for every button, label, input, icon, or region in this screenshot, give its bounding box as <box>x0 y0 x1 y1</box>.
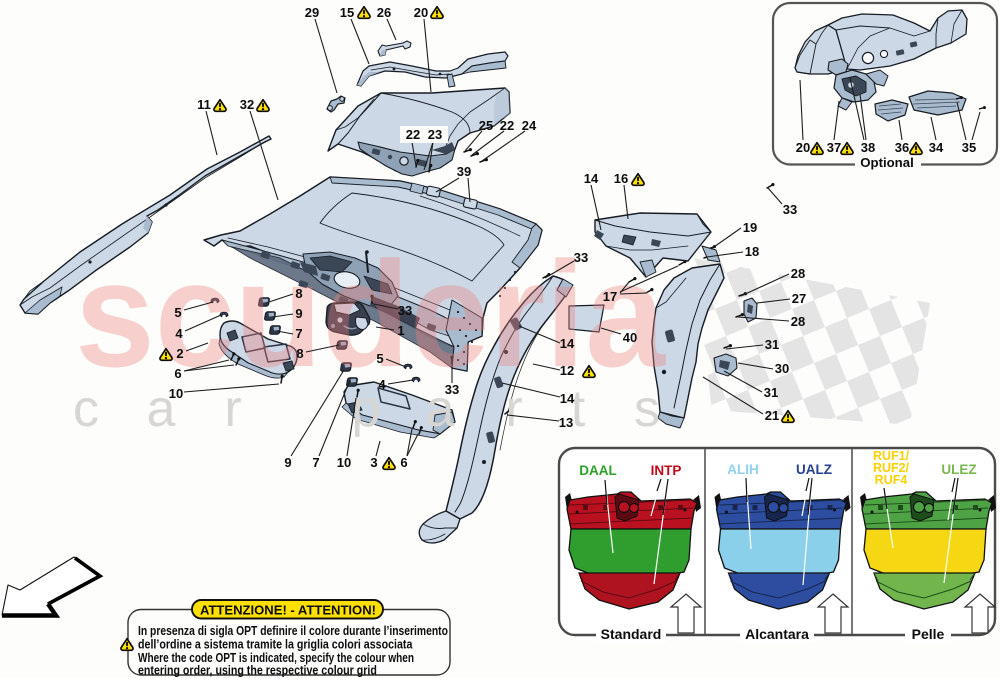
svg-text:8: 8 <box>296 346 303 361</box>
svg-text:8: 8 <box>295 286 302 301</box>
svg-text:26: 26 <box>377 5 391 20</box>
svg-text:35: 35 <box>962 140 976 155</box>
svg-text:33: 33 <box>445 382 459 397</box>
svg-text:38: 38 <box>861 140 875 155</box>
svg-text:33: 33 <box>574 250 588 265</box>
svg-text:14: 14 <box>560 391 575 406</box>
svg-text:12: 12 <box>560 363 574 378</box>
svg-text:ALIH: ALIH <box>727 462 759 477</box>
svg-text:28: 28 <box>791 266 805 281</box>
svg-text:15: 15 <box>340 5 354 20</box>
svg-text:37: 37 <box>827 140 841 155</box>
svg-text:10: 10 <box>169 386 183 401</box>
svg-text:27: 27 <box>792 291 806 306</box>
svg-text:28: 28 <box>791 314 805 329</box>
svg-text:14: 14 <box>584 171 599 186</box>
svg-text:4: 4 <box>175 326 183 341</box>
svg-text:11: 11 <box>197 97 211 112</box>
svg-text:19: 19 <box>743 220 757 235</box>
svg-text:Standard: Standard <box>601 626 662 642</box>
svg-text:18: 18 <box>745 244 759 259</box>
svg-text:ULEZ: ULEZ <box>941 462 976 477</box>
svg-text:4: 4 <box>378 377 386 392</box>
svg-text:31: 31 <box>764 385 778 400</box>
svg-text:20: 20 <box>796 140 810 155</box>
svg-text:31: 31 <box>765 337 779 352</box>
svg-text:entering order, using the resp: entering order, using the respective col… <box>138 662 377 677</box>
svg-text:DAAL: DAAL <box>579 463 617 478</box>
svg-text:9: 9 <box>295 306 302 321</box>
svg-text:36: 36 <box>895 140 909 155</box>
svg-text:23: 23 <box>428 127 442 142</box>
svg-text:UALZ: UALZ <box>796 462 832 477</box>
svg-text:20: 20 <box>414 5 428 20</box>
svg-text:34: 34 <box>929 140 944 155</box>
svg-text:1: 1 <box>397 323 404 338</box>
svg-text:33: 33 <box>783 202 797 217</box>
svg-text:9: 9 <box>284 455 291 470</box>
svg-text:25: 25 <box>479 118 493 133</box>
svg-text:7: 7 <box>312 455 319 470</box>
svg-text:ATTENZIONE! - ATTENTION!: ATTENZIONE! - ATTENTION! <box>200 603 376 618</box>
svg-text:INTP: INTP <box>651 463 682 478</box>
svg-text:29: 29 <box>305 5 319 20</box>
svg-text:13: 13 <box>559 415 573 430</box>
svg-text:30: 30 <box>775 361 789 376</box>
svg-text:c: c <box>73 380 99 438</box>
svg-text:32: 32 <box>240 97 254 112</box>
svg-text:p: p <box>352 380 381 438</box>
svg-text:6: 6 <box>400 455 407 470</box>
svg-text:Pelle: Pelle <box>912 626 945 642</box>
svg-text:Optional: Optional <box>860 155 913 170</box>
svg-text:22: 22 <box>406 127 420 142</box>
svg-text:10: 10 <box>337 455 351 470</box>
svg-text:17: 17 <box>603 289 617 304</box>
svg-text:s: s <box>634 380 660 438</box>
svg-text:7: 7 <box>295 326 302 341</box>
svg-text:3: 3 <box>370 455 377 470</box>
svg-text:6: 6 <box>174 366 181 381</box>
svg-text:24: 24 <box>522 118 537 133</box>
svg-text:5: 5 <box>174 305 181 320</box>
svg-text:dell’ordine a sistema tramite: dell’ordine a sistema tramite la griglia… <box>138 636 413 651</box>
svg-text:2: 2 <box>176 346 183 361</box>
svg-text:RUF4: RUF4 <box>875 473 908 487</box>
svg-text:16: 16 <box>614 171 628 186</box>
svg-text:40: 40 <box>623 330 637 345</box>
svg-text:r: r <box>505 380 522 438</box>
svg-text:14: 14 <box>560 336 575 351</box>
svg-text:Alcantara: Alcantara <box>745 626 809 642</box>
svg-text:22: 22 <box>500 118 514 133</box>
svg-text:5: 5 <box>376 351 383 366</box>
svg-text:21: 21 <box>765 408 779 423</box>
svg-text:33: 33 <box>398 303 412 318</box>
svg-text:39: 39 <box>457 164 471 179</box>
